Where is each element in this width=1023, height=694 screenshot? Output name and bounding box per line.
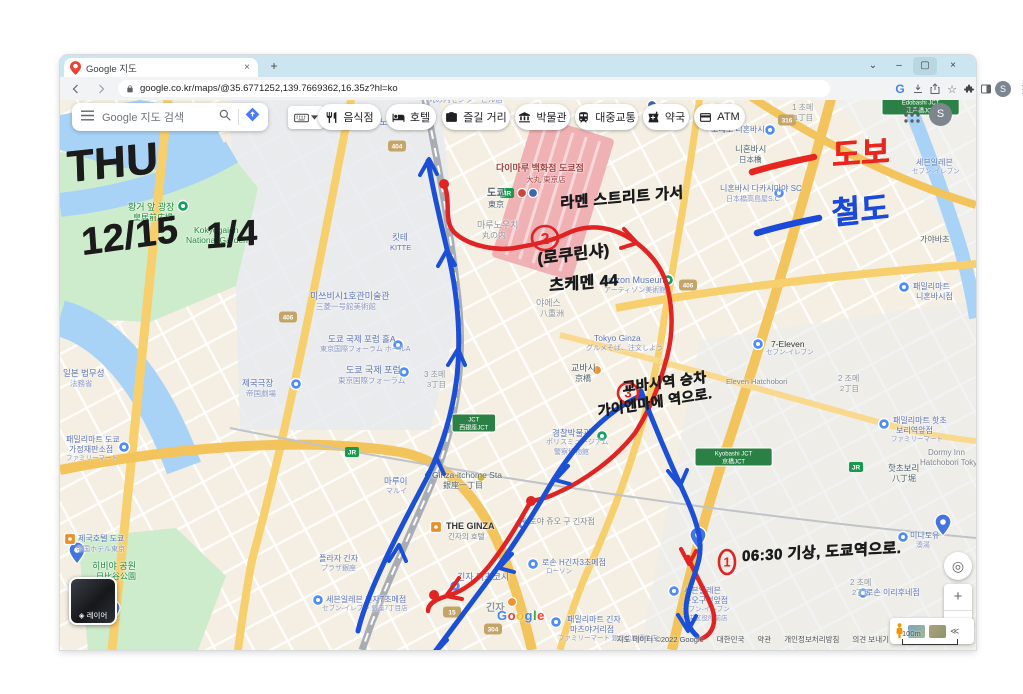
category-pill-hotel[interactable]: 호텔	[386, 104, 436, 130]
google-watermark: Google	[497, 608, 545, 623]
pill-label: 호텔	[410, 109, 430, 125]
zoom-in-button[interactable]: +	[944, 584, 972, 611]
map-attribution: 지도 데이터 ©2022 Google대한민국약관개인정보처리방침의견 보내기 …	[617, 629, 958, 645]
share-icon[interactable]	[927, 81, 943, 97]
google-g-icon[interactable]: G	[892, 81, 908, 97]
url-text: google.co.kr/maps/@35.6771252,139.766936…	[140, 83, 398, 94]
museum-icon	[518, 111, 531, 124]
pill-label: 박물관	[536, 109, 566, 125]
category-pill-museum[interactable]: 박물관	[515, 104, 570, 130]
install-icon[interactable]	[910, 81, 926, 97]
blue-route-path	[641, 391, 700, 636]
attribution-link[interactable]: 약관	[757, 634, 771, 645]
attribution-links: 지도 데이터 ©2022 Google대한민국약관개인정보처리방침의견 보내기	[617, 634, 889, 645]
window-minimize-button[interactable]: –	[887, 57, 911, 75]
tab-strip: Google 지도 × + ⌄ – ▢ ×	[60, 55, 976, 77]
red-route-dot	[429, 590, 439, 600]
category-pill-pharmacy[interactable]: 약국	[643, 104, 689, 130]
profile-avatar[interactable]: S	[995, 81, 1011, 97]
new-tab-button[interactable]: +	[266, 59, 282, 75]
screenshot-stage: Google 지도 × + ⌄ – ▢ × google.co.kr/maps/…	[0, 0, 1023, 694]
hotel-icon	[392, 111, 405, 124]
attribution-link[interactable]: 개인정보처리방침	[784, 634, 839, 645]
pill-label: 음식점	[343, 109, 373, 125]
extensions-puzzle-icon[interactable]	[961, 81, 977, 97]
attractions-icon	[445, 111, 458, 124]
map-viewport[interactable]: Edobashi JCT江戸橋JCTKyobashi JCT京橋JCTJCT西銀…	[60, 100, 976, 650]
handwritten-number: 1	[723, 555, 730, 570]
menu-hamburger-icon[interactable]	[81, 108, 94, 126]
search-input[interactable]: Google 지도 검색	[102, 109, 218, 125]
category-pill-transit[interactable]: 대중교통	[575, 104, 638, 130]
map-data-credit: 지도 데이터 ©2022 Google	[617, 634, 704, 645]
atm-icon	[699, 111, 712, 124]
google-maps-favicon	[70, 61, 81, 75]
category-pill-atm[interactable]: ATM	[694, 104, 745, 130]
url-bar[interactable]: google.co.kr/maps/@35.6771252,139.766936…	[118, 80, 830, 97]
scale-label: 100m	[902, 629, 921, 638]
red-route-dot	[439, 179, 449, 189]
forward-button[interactable]	[92, 80, 110, 98]
lock-icon	[126, 84, 134, 94]
browser-tab[interactable]: Google 지도 ×	[64, 58, 258, 77]
attribution-link[interactable]: 의견 보내기	[852, 634, 889, 645]
category-pill-restaurant[interactable]: 음식점	[318, 104, 381, 130]
blue-route-path	[358, 161, 459, 631]
red-route-dot	[526, 496, 536, 506]
scale-bar	[902, 639, 958, 645]
window-menu-chevron-icon[interactable]: ⌄	[861, 57, 885, 75]
restaurant-icon	[325, 111, 338, 124]
keyboard-icon	[294, 113, 309, 123]
bookmark-star-icon[interactable]: ☆	[944, 81, 960, 97]
red-route-arrow	[446, 578, 462, 599]
side-panel-icon[interactable]	[978, 81, 994, 97]
browser-window: Google 지도 × + ⌄ – ▢ × google.co.kr/maps/…	[60, 55, 976, 650]
pill-label: 대중교통	[595, 109, 635, 125]
divider	[238, 109, 239, 125]
chevron-down-icon	[311, 115, 318, 120]
window-maximize-button[interactable]: ▢	[913, 57, 937, 75]
hand-drawn-routes-layer: 231	[60, 100, 976, 650]
browser-toolbar: google.co.kr/maps/@35.6771252,139.766936…	[60, 77, 976, 101]
handwritten-number: 2	[541, 231, 550, 248]
back-button[interactable]	[67, 80, 85, 98]
pill-label: 약국	[665, 109, 685, 125]
pill-label: ATM	[717, 111, 739, 123]
handwritten-number: 3	[624, 386, 631, 401]
directions-icon[interactable]	[245, 107, 260, 127]
search-icon[interactable]	[218, 108, 232, 127]
search-box[interactable]: Google 지도 검색	[72, 103, 268, 131]
tab-title: Google 지도	[86, 61, 242, 75]
pill-label: 즐길 거리	[463, 109, 507, 125]
attribution-link[interactable]: 대한민국	[717, 634, 745, 645]
kebab-menu-icon[interactable]: ⋮	[1015, 81, 1023, 97]
legend-stroke	[757, 218, 819, 233]
pharmacy-icon	[647, 111, 660, 124]
layers-button[interactable]: ◈ 레이어	[69, 577, 117, 625]
layers-diamond-icon: ◈	[79, 611, 85, 620]
my-location-button[interactable]: ◎	[944, 552, 972, 580]
google-apps-grid-icon[interactable]	[903, 106, 921, 124]
window-close-button[interactable]: ×	[941, 57, 965, 75]
legend-stroke	[752, 157, 814, 172]
tab-close-icon[interactable]: ×	[242, 62, 252, 73]
transit-icon	[577, 111, 590, 124]
account-avatar[interactable]: S	[929, 103, 952, 126]
category-pill-attractions[interactable]: 즐길 거리	[442, 104, 510, 130]
